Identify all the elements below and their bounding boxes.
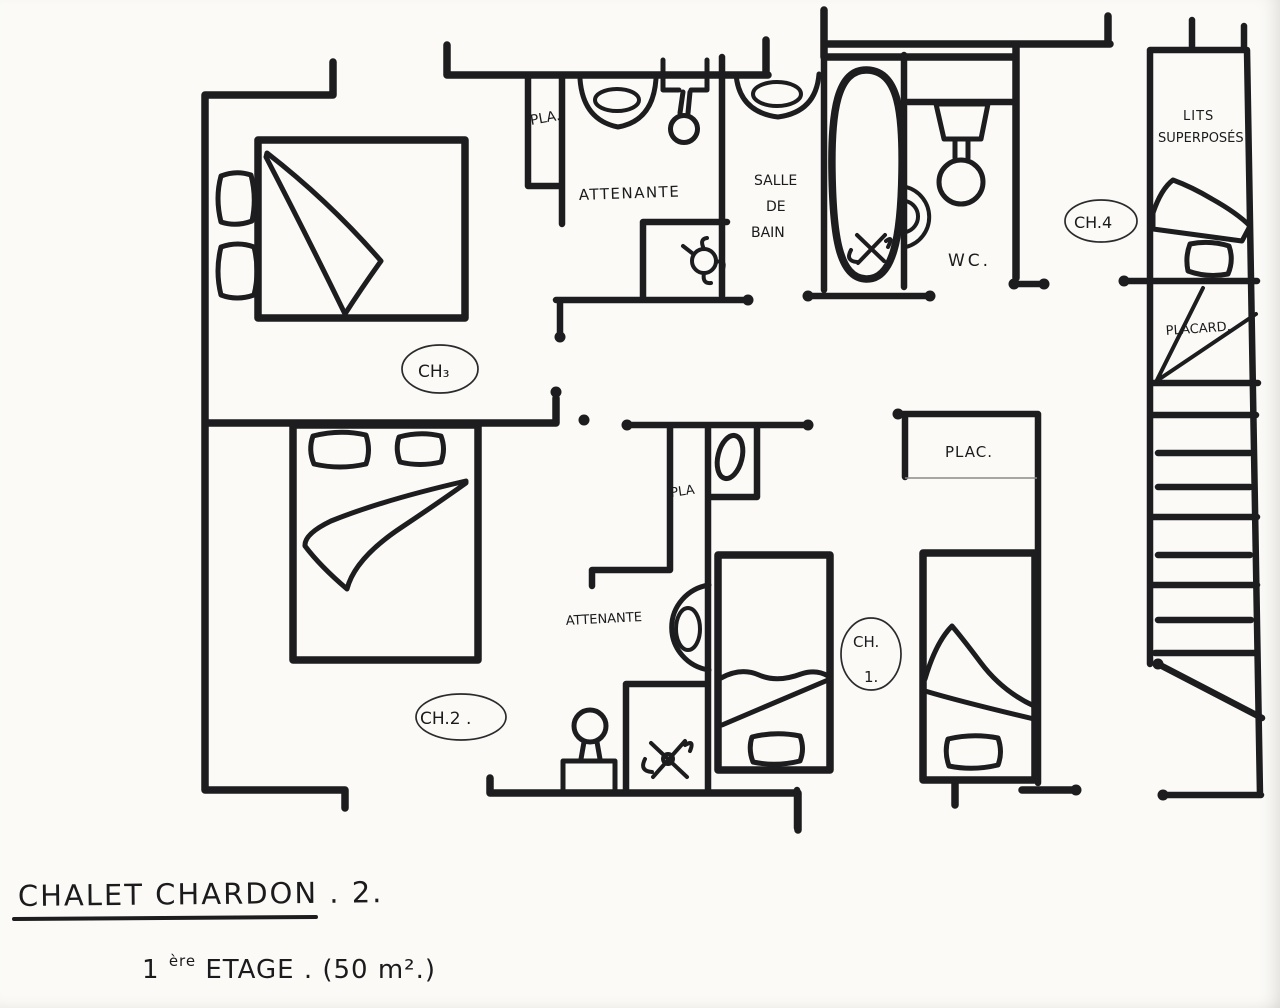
door-dot <box>1039 279 1050 290</box>
bedroom-3-bed <box>218 140 465 318</box>
subtitle-superscript: ère <box>169 952 196 970</box>
pillow-icon <box>750 734 802 765</box>
toilet-bowl <box>692 249 716 273</box>
subtitle-rest: ETAGE . (50 m².) <box>205 955 436 985</box>
floor-plan-canvas: PLA. ATTENANTE SALLE DE BAIN WC. CH.4 LI… <box>0 0 1280 1008</box>
label-attenante-top: ATTENANTE <box>579 182 681 204</box>
blanket-edge <box>721 672 828 679</box>
door-dot <box>1071 785 1082 796</box>
title-underline <box>14 917 316 919</box>
label-ch2: CH.2 . <box>420 709 471 729</box>
shower-icon <box>663 60 707 113</box>
bidet-bowl <box>676 608 700 650</box>
label-ch4: CH.4 <box>1074 213 1112 232</box>
toilet-icon <box>683 238 724 283</box>
bunk-bed-icon <box>1153 180 1250 241</box>
toilet-icon <box>936 104 988 158</box>
bathtub-icon <box>832 70 902 279</box>
washbasin-bowl <box>753 82 801 106</box>
bunk-bed <box>1153 180 1250 275</box>
pillow-icon <box>311 432 369 467</box>
pillow-icon <box>218 173 254 225</box>
toilet-bowl <box>939 160 983 204</box>
door-dot <box>803 420 814 431</box>
door-dot <box>1158 790 1169 801</box>
door-dot <box>1119 276 1130 287</box>
label-ch1-line1: CH. <box>853 633 879 651</box>
pillow-icon <box>218 244 257 298</box>
label-salle-de-bain-3: BAIN <box>751 225 785 241</box>
pillow-icon <box>397 434 443 465</box>
pedestal-washbasin-icon <box>563 710 615 790</box>
pillow-icon <box>946 736 1000 769</box>
stair-steps <box>1153 415 1257 653</box>
staircase <box>1153 415 1262 718</box>
plan-subtitle: 1 ère ETAGE . (50 m².) <box>142 943 436 985</box>
bedroom-2-bed <box>293 425 478 660</box>
bedroom-1-bed-right <box>923 553 1035 780</box>
faucet-arc-icon <box>906 187 929 247</box>
shower-head <box>671 116 698 143</box>
washbasin-bowl <box>574 710 606 742</box>
blanket-icon <box>266 153 381 314</box>
blanket-icon <box>305 481 466 589</box>
pillow-icon <box>1187 242 1231 275</box>
label-attenante-bottom: ATTENANTE <box>565 610 642 629</box>
outer-walls <box>205 10 1110 830</box>
single-bed-icon <box>923 553 1035 780</box>
drain-cross <box>643 741 692 777</box>
title-block: CHALET CHARDON . 2. 1 ère ETAGE . (50 m²… <box>14 875 436 985</box>
door-opening-dots <box>551 276 1169 801</box>
label-wc: WC. <box>948 251 991 271</box>
door-dot <box>925 291 936 302</box>
label-lits-superposes-2: SUPERPOSÉS <box>1158 130 1244 146</box>
single-bed-icon <box>718 555 830 770</box>
blanket-fold <box>722 680 828 725</box>
drain-icon <box>849 235 891 263</box>
label-lits-superposes-1: LITS <box>1183 109 1214 124</box>
attenante-top-fixtures <box>580 60 724 283</box>
door-dot <box>893 409 904 420</box>
plan-title: CHALET CHARDON . 2. <box>18 875 384 913</box>
label-pla-top: PLA. <box>529 108 562 129</box>
door-dot <box>551 387 562 398</box>
label-ch3: CH₃ <box>418 362 449 382</box>
door-dot <box>1009 279 1020 290</box>
scanned-floor-plan-page: PLA. ATTENANTE SALLE DE BAIN WC. CH.4 LI… <box>0 0 1280 1008</box>
toilet-detail <box>683 238 724 283</box>
toilet-icon <box>713 433 747 481</box>
subtitle-number: 1 <box>142 955 160 985</box>
wc-fixtures <box>936 104 988 204</box>
shower-drain-icon <box>643 741 692 777</box>
label-ch1-line2: 1. <box>864 668 878 686</box>
label-plac: PLAC. <box>945 443 993 461</box>
door-dot <box>555 332 566 343</box>
label-salle-de-bain-2: DE <box>766 199 786 215</box>
stair-diagonal <box>1158 664 1262 718</box>
washbasin-bowl <box>595 89 639 111</box>
bedroom-1-bed-left <box>718 555 830 770</box>
double-bed-icon <box>293 425 478 660</box>
label-pla-mid: PLA <box>669 483 695 501</box>
washbasin-pedestal <box>563 742 615 790</box>
door-dot <box>803 291 814 302</box>
walls <box>205 10 1261 830</box>
door-dot <box>622 420 633 431</box>
door-dot <box>743 295 754 306</box>
door-dot <box>579 415 590 426</box>
label-salle-de-bain-1: SALLE <box>754 173 797 189</box>
washbasin-icon <box>580 79 656 127</box>
